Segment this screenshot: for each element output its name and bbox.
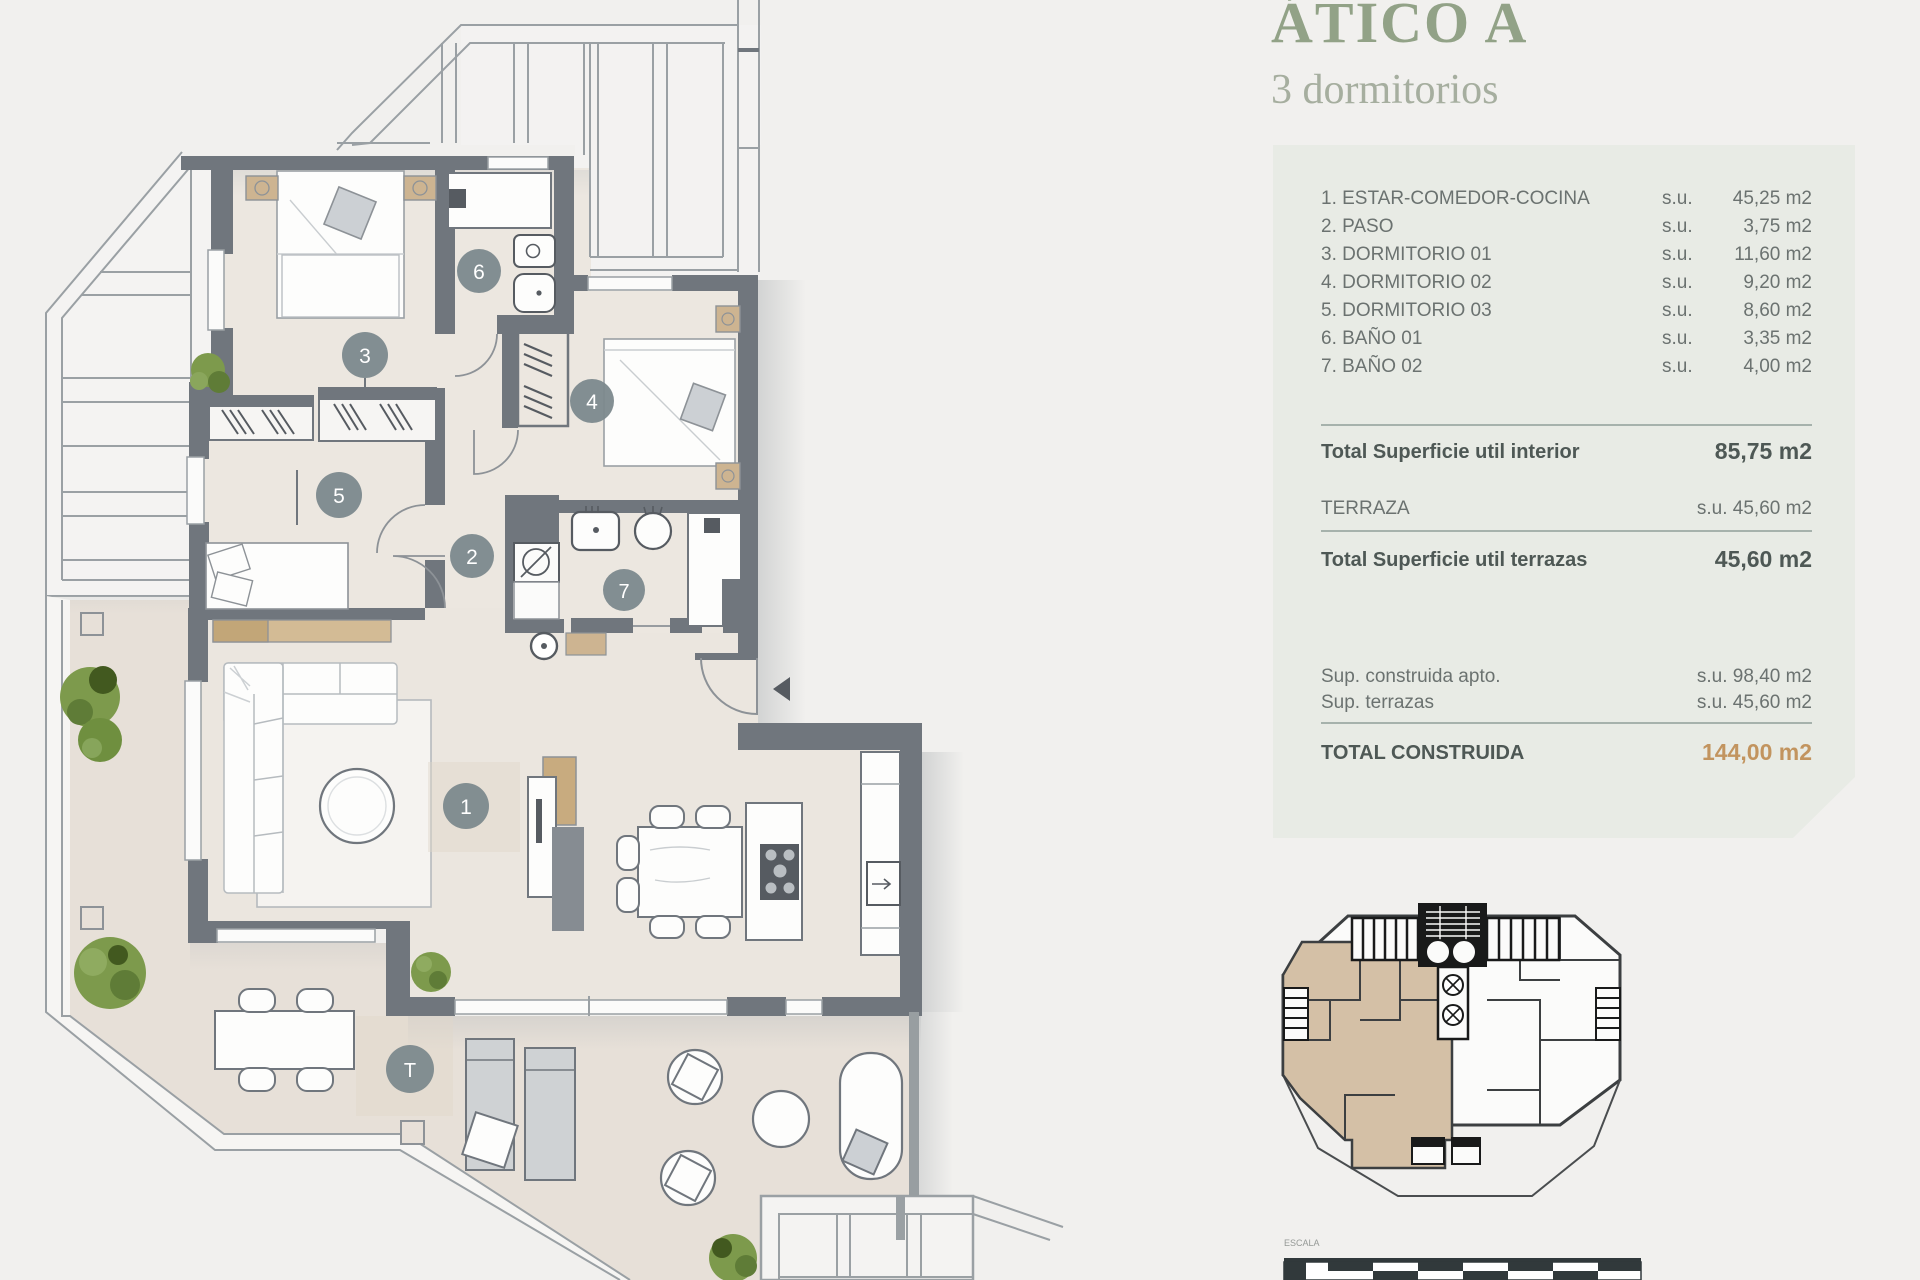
svg-text:2. PASO: 2. PASO [1321,216,1394,237]
svg-text:s.u.: s.u. [1662,272,1693,293]
svg-text:ESCALA: ESCALA [1284,1238,1320,1248]
svg-text:3,35 m2: 3,35 m2 [1743,328,1812,349]
svg-text:TERRAZA: TERRAZA [1321,498,1410,519]
svg-text:144,00 m2: 144,00 m2 [1702,739,1812,765]
svg-text:Sup. terrazas: Sup. terrazas [1321,692,1434,713]
svg-text:s.u.: s.u. [1662,216,1693,237]
svg-text:4: 4 [586,391,598,414]
svg-text:7. BAÑO 02: 7. BAÑO 02 [1321,355,1422,377]
svg-text:s.u.: s.u. [1662,244,1693,265]
svg-text:Total Superficie util interior: Total Superficie util interior [1321,441,1580,463]
svg-text:3,75 m2: 3,75 m2 [1743,216,1812,237]
svg-text:Sup. construida apto.: Sup. construida apto. [1321,666,1501,687]
svg-text:s.u.: s.u. [1662,328,1693,349]
svg-text:11,60 m2: 11,60 m2 [1734,244,1812,265]
svg-text:6: 6 [473,261,485,284]
svg-text:s.u. 98,40 m2: s.u. 98,40 m2 [1697,666,1812,687]
svg-text:TOTAL CONSTRUIDA: TOTAL CONSTRUIDA [1321,742,1524,764]
svg-text:Total Superficie util terrazas: Total Superficie util terrazas [1321,549,1587,571]
svg-text:4,00 m2: 4,00 m2 [1743,356,1812,377]
svg-text:4. DORMITORIO 02: 4. DORMITORIO 02 [1321,272,1492,293]
svg-text:s.u.: s.u. [1662,300,1693,321]
svg-text:8,60 m2: 8,60 m2 [1743,300,1812,321]
svg-text:3. DORMITORIO 01: 3. DORMITORIO 01 [1321,244,1492,265]
svg-text:s.u. 45,60 m2: s.u. 45,60 m2 [1697,498,1812,519]
svg-text:s.u.: s.u. [1662,356,1693,377]
svg-text:9,20 m2: 9,20 m2 [1743,272,1812,293]
svg-text:ÁTICO A: ÁTICO A [1271,0,1528,55]
svg-text:1: 1 [460,796,472,819]
svg-text:45,25 m2: 45,25 m2 [1733,188,1812,209]
svg-text:45,60 m2: 45,60 m2 [1715,546,1812,572]
svg-text:s.u. 45,60 m2: s.u. 45,60 m2 [1697,692,1812,713]
svg-text:1. ESTAR-COMEDOR-COCINA: 1. ESTAR-COMEDOR-COCINA [1321,188,1590,209]
svg-text:s.u.: s.u. [1662,188,1693,209]
svg-text:85,75 m2: 85,75 m2 [1715,438,1812,464]
svg-text:3 dormitorios: 3 dormitorios [1271,67,1499,113]
svg-text:3: 3 [359,345,371,368]
svg-text:7: 7 [618,581,629,603]
svg-text:6. BAÑO 01: 6. BAÑO 01 [1321,327,1422,349]
svg-text:T: T [404,1060,416,1082]
svg-text:2: 2 [466,546,478,569]
svg-text:5: 5 [333,485,345,508]
svg-text:5. DORMITORIO 03: 5. DORMITORIO 03 [1321,300,1492,321]
